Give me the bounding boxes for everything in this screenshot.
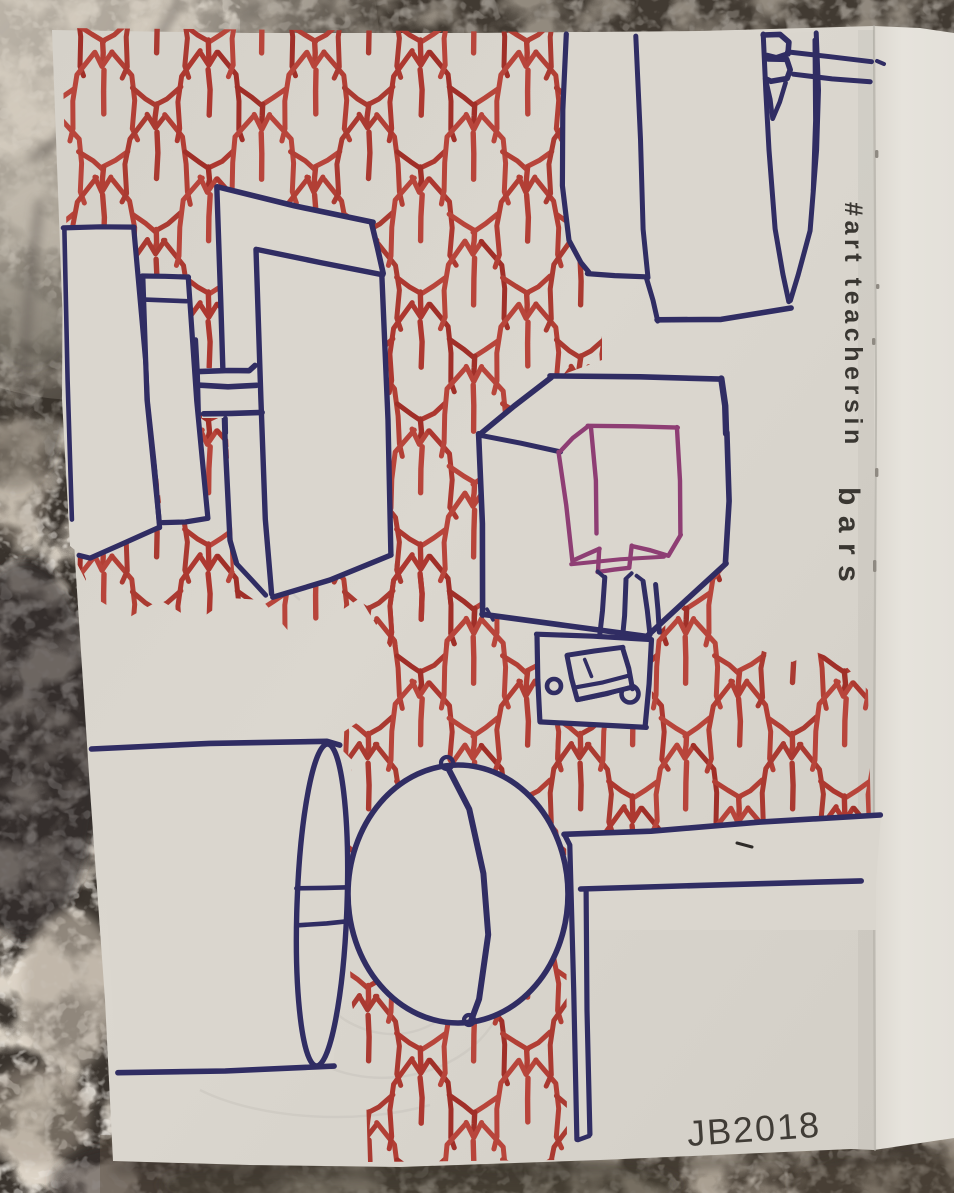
svg-text:bars: bars [832, 487, 865, 592]
svg-text:#art teachersin: #art teachersin [839, 202, 867, 449]
